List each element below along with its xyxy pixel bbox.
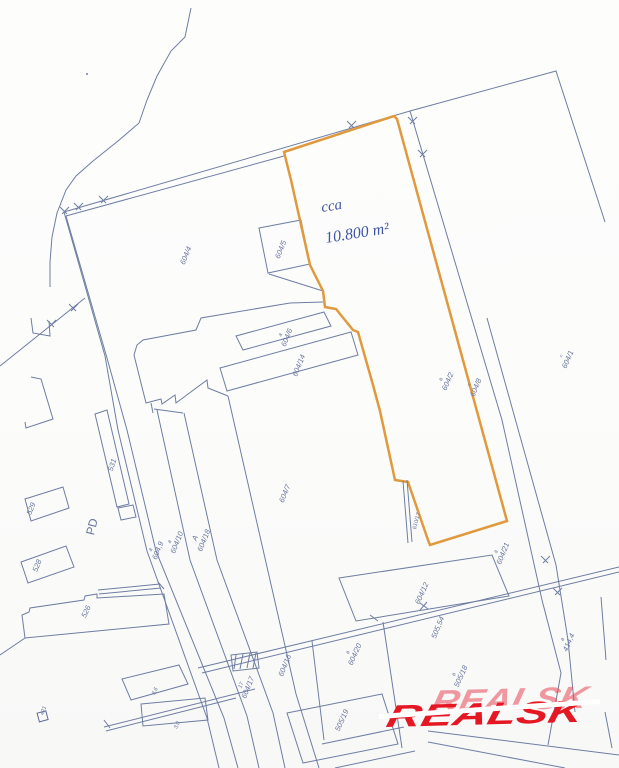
svg-text:cca: cca	[320, 197, 343, 216]
